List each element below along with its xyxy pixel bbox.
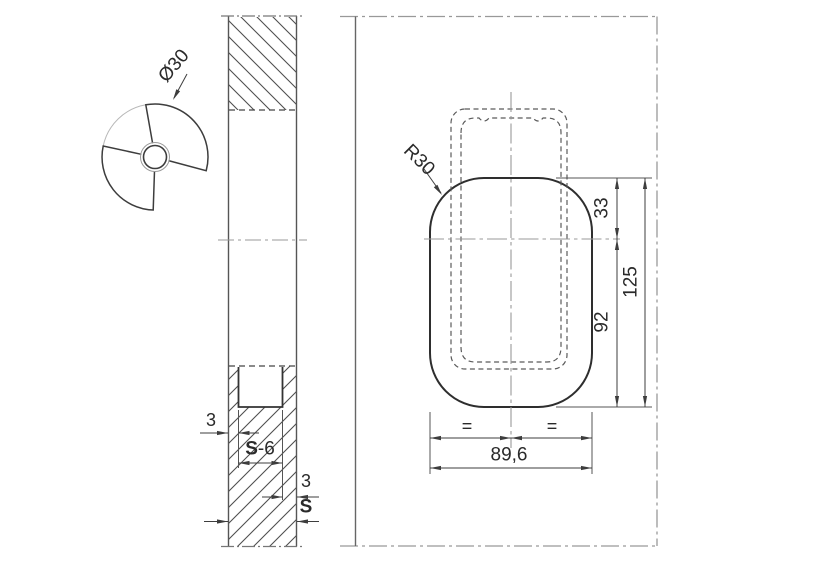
cutter-hub-inner xyxy=(144,146,167,169)
arrow xyxy=(615,228,619,239)
arrow xyxy=(615,178,619,189)
slot-notch xyxy=(239,366,283,407)
diameter-leader-arrow xyxy=(173,89,180,100)
arrow xyxy=(217,519,228,523)
arrow xyxy=(217,431,228,435)
radius-leader-arrow xyxy=(434,185,442,195)
dim-92-label: 92 xyxy=(593,311,612,332)
cutter-detail-view xyxy=(102,74,208,210)
arrow xyxy=(511,436,522,440)
dim-125-label: 125 xyxy=(622,266,641,298)
arrow xyxy=(643,396,647,407)
arrow xyxy=(430,466,441,470)
thickness-label: S xyxy=(300,498,313,517)
dim-width-label: 89,6 xyxy=(491,446,528,465)
main-view xyxy=(340,17,657,547)
section-view xyxy=(200,16,319,547)
cutter-bottom-sector xyxy=(102,146,154,210)
arrow xyxy=(615,239,619,250)
wall-right-label: 3 xyxy=(301,472,311,490)
technical-drawing-page: Ø30 R30 33 92 125 = = 89,6 3 S-6 3 S xyxy=(0,0,836,571)
drawing-geometry xyxy=(0,0,836,571)
slot-width-label: S-6 xyxy=(245,440,275,459)
arrow xyxy=(500,436,511,440)
arrow xyxy=(581,436,592,440)
equal-left-label: = xyxy=(462,417,473,435)
equal-right-label: = xyxy=(547,417,558,435)
cutter-top-sector xyxy=(146,104,208,171)
arrow xyxy=(643,178,647,189)
upper-hatch-area xyxy=(229,17,296,110)
arrow xyxy=(615,396,619,407)
arrow xyxy=(430,436,441,440)
wall-left-label: 3 xyxy=(206,411,216,429)
arrow xyxy=(297,519,308,523)
dim-33-label: 33 xyxy=(593,197,612,218)
arrow xyxy=(581,466,592,470)
cutter-hub-outer xyxy=(141,143,170,172)
cutter-thin-arc xyxy=(103,105,146,146)
plate-phantom-border xyxy=(340,17,657,547)
